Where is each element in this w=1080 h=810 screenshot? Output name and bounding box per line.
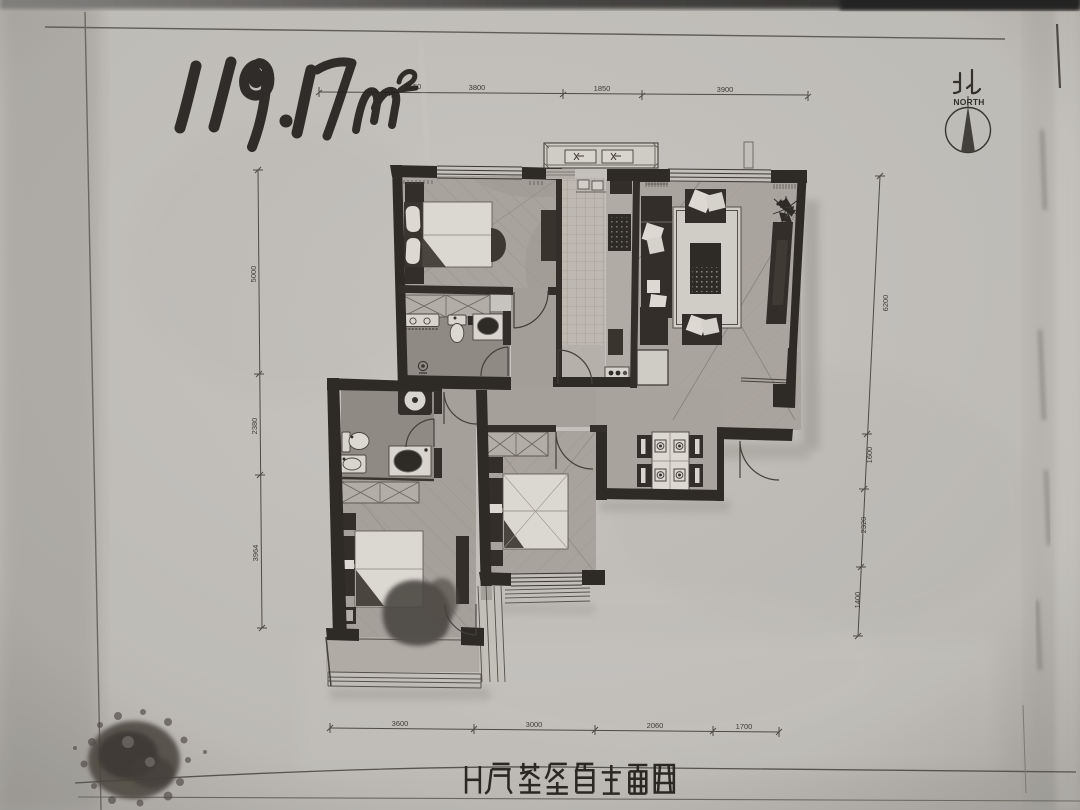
svg-text:2060: 2060	[647, 721, 664, 730]
svg-text:1850: 1850	[594, 84, 611, 93]
svg-text:1400: 1400	[853, 592, 862, 609]
svg-text:3000: 3000	[526, 720, 543, 729]
svg-text:1700: 1700	[736, 722, 753, 731]
svg-text:2320: 2320	[859, 517, 868, 534]
svg-text:5000: 5000	[249, 266, 258, 283]
svg-text:2380: 2380	[250, 418, 259, 435]
svg-text:NORTH: NORTH	[953, 97, 984, 107]
svg-text:3800: 3800	[469, 83, 486, 92]
svg-text:6200: 6200	[881, 295, 890, 312]
svg-text:1600: 1600	[865, 447, 874, 464]
svg-text:3900: 3900	[717, 85, 734, 94]
svg-text:3600: 3600	[392, 719, 409, 728]
svg-text:3964: 3964	[251, 545, 260, 562]
